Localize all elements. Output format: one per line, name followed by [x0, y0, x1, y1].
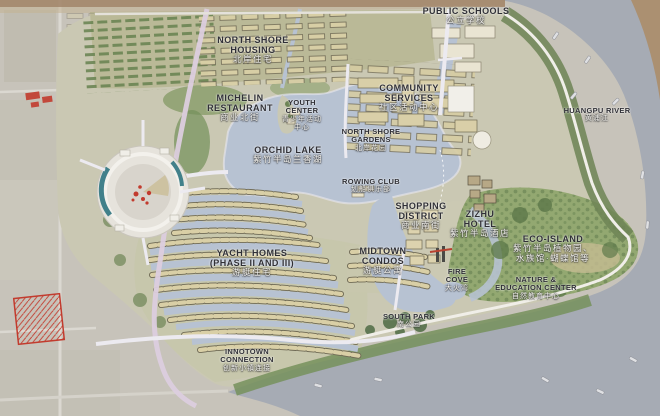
map-artwork: [0, 0, 660, 416]
masterplan-map: PUBLIC SCHOOLS公立学校HUANGPU RIVER黄浦江NORTH …: [0, 0, 660, 416]
north-bank-strip: [0, 0, 505, 7]
